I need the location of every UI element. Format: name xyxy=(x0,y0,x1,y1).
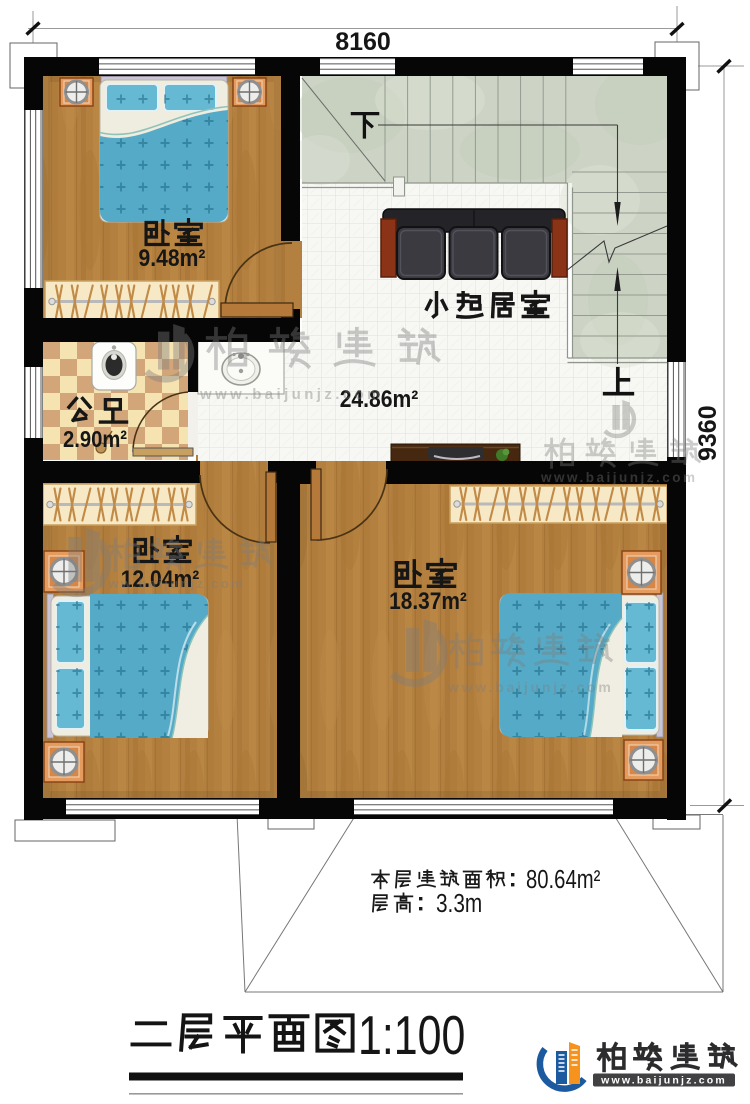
svg-text:2.90m²: 2.90m² xyxy=(63,426,127,453)
svg-text:9360: 9360 xyxy=(694,405,722,461)
svg-text:3.3m: 3.3m xyxy=(436,889,482,918)
svg-text:1:100: 1:100 xyxy=(358,1005,465,1066)
svg-text:www.baijunjz.com: www.baijunjz.com xyxy=(199,386,384,403)
svg-text:80.64m²: 80.64m² xyxy=(526,865,601,894)
svg-text:8160: 8160 xyxy=(335,28,391,56)
svg-text:18.37m²: 18.37m² xyxy=(389,588,467,615)
svg-text:www.baijunjz.com: www.baijunjz.com xyxy=(540,470,698,485)
svg-text:www.baijunjz.com: www.baijunjz.com xyxy=(600,1075,727,1087)
svg-text:9.48m²: 9.48m² xyxy=(139,245,206,272)
svg-text:www.baijunjz.com: www.baijunjz.com xyxy=(95,576,245,591)
svg-text:www.baijunjz.com: www.baijunjz.com xyxy=(447,679,614,695)
